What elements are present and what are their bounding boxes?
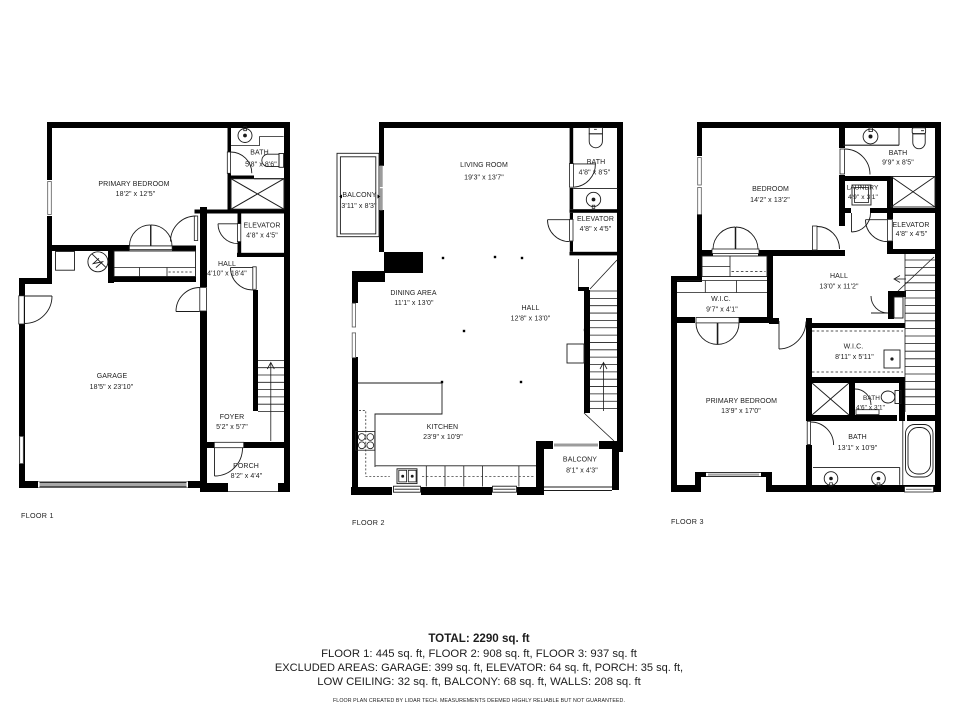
svg-text:PRIMARY BEDROOM: PRIMARY BEDROOM	[98, 181, 169, 188]
svg-text:HALL: HALL	[522, 305, 540, 312]
svg-text:4'8" x 4'5": 4'8" x 4'5"	[580, 226, 612, 233]
svg-text:DINING AREA: DINING AREA	[390, 290, 436, 297]
svg-text:HALL: HALL	[830, 273, 848, 280]
svg-text:11'1" x 13'0": 11'1" x 13'0"	[394, 300, 434, 307]
svg-text:HALL: HALL	[218, 261, 236, 268]
svg-text:BEDROOM: BEDROOM	[752, 186, 789, 193]
svg-text:BATH: BATH	[863, 395, 880, 402]
svg-text:FOYER: FOYER	[220, 414, 245, 421]
svg-text:4'8" x 4'5": 4'8" x 4'5"	[246, 232, 278, 239]
svg-text:8'11" x 5'11": 8'11" x 5'11"	[835, 354, 874, 361]
svg-text:ELEVATOR: ELEVATOR	[893, 222, 930, 229]
svg-text:3'11" x 8'3": 3'11" x 8'3"	[341, 203, 377, 210]
svg-text:FLOOR 1: 445 sq. ft, FLOOR 2:: FLOOR 1: 445 sq. ft, FLOOR 2: 908 sq. ft…	[321, 648, 638, 660]
svg-text:23'9" x 10'9": 23'9" x 10'9"	[423, 434, 463, 441]
svg-text:19'3" x 13'7": 19'3" x 13'7"	[464, 174, 504, 181]
svg-text:14'2" x 13'2": 14'2" x 13'2"	[750, 197, 790, 204]
svg-text:8'1" x 4'3": 8'1" x 4'3"	[566, 467, 598, 474]
svg-text:LOW CEILING: 32 sq. ft, BALCON: LOW CEILING: 32 sq. ft, BALCONY: 68 sq. …	[317, 676, 641, 688]
svg-text:BATH: BATH	[587, 159, 606, 166]
svg-text:ELEVATOR: ELEVATOR	[244, 223, 281, 230]
svg-text:8'2" x 4'4": 8'2" x 4'4"	[231, 473, 263, 480]
svg-text:BATH: BATH	[889, 150, 908, 157]
svg-text:4'8" x 8'5": 4'8" x 8'5"	[579, 170, 611, 177]
svg-text:BATH: BATH	[848, 434, 867, 441]
svg-text:18'2" x 12'5": 18'2" x 12'5"	[116, 191, 156, 198]
svg-text:FLOOR PLAN CREATED BY LIDAR TE: FLOOR PLAN CREATED BY LIDAR TECH. MEASUR…	[333, 698, 625, 704]
svg-text:W.I.C.: W.I.C.	[844, 344, 864, 351]
svg-text:FLOOR 3: FLOOR 3	[671, 517, 704, 526]
svg-text:13'1" x 10'9": 13'1" x 10'9"	[838, 445, 878, 452]
svg-text:EXCLUDED AREAS: GARAGE: 399 sq: EXCLUDED AREAS: GARAGE: 399 sq. ft, ELEV…	[275, 662, 683, 674]
svg-text:BALCONY: BALCONY	[342, 192, 376, 199]
svg-text:13'0" x 11'2": 13'0" x 11'2"	[819, 283, 859, 290]
svg-text:4'10" x 18'4": 4'10" x 18'4"	[207, 271, 247, 278]
svg-text:4'8" x 4'5": 4'8" x 4'5"	[896, 231, 928, 238]
svg-text:FLOOR 1: FLOOR 1	[21, 511, 54, 520]
svg-text:TOTAL: 2290 sq. ft: TOTAL: 2290 sq. ft	[428, 632, 529, 645]
svg-text:PORCH: PORCH	[233, 463, 259, 470]
svg-text:4'6" x 3'1": 4'6" x 3'1"	[856, 404, 885, 411]
svg-text:5'8" x 8'6": 5'8" x 8'6"	[245, 161, 277, 168]
svg-text:W.I.C.: W.I.C.	[711, 296, 731, 303]
svg-text:18'5" x 23'10": 18'5" x 23'10"	[90, 384, 134, 391]
svg-text:BALCONY: BALCONY	[563, 457, 597, 464]
svg-text:ELEVATOR: ELEVATOR	[577, 216, 614, 223]
svg-text:13'9" x 17'0": 13'9" x 17'0"	[721, 408, 761, 415]
svg-text:PRIMARY BEDROOM: PRIMARY BEDROOM	[706, 398, 777, 405]
svg-text:GARAGE: GARAGE	[97, 373, 128, 380]
svg-text:12'8" x 13'0": 12'8" x 13'0"	[511, 315, 551, 322]
svg-text:4'9" x 3'1": 4'9" x 3'1"	[848, 194, 878, 201]
svg-text:KITCHEN: KITCHEN	[427, 424, 458, 431]
svg-text:FLOOR 2: FLOOR 2	[352, 518, 385, 527]
svg-text:LAUNDRY: LAUNDRY	[846, 185, 879, 192]
svg-text:BATH: BATH	[250, 149, 269, 156]
svg-text:9'7" x 4'1": 9'7" x 4'1"	[706, 306, 738, 313]
svg-text:5'2" x 5'7": 5'2" x 5'7"	[216, 424, 248, 431]
svg-text:LIVING ROOM: LIVING ROOM	[460, 162, 508, 169]
svg-text:9'9" x 8'5": 9'9" x 8'5"	[882, 159, 914, 166]
